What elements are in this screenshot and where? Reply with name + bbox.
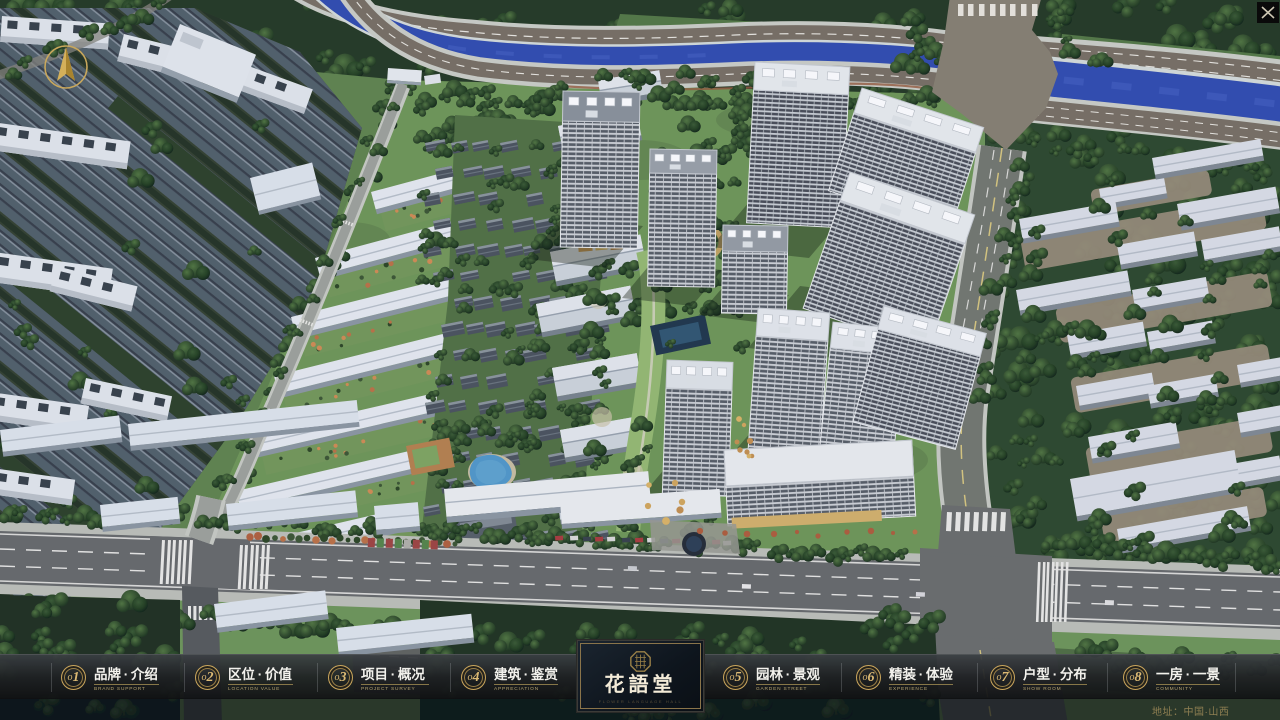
- svg-text:FLOWER LANGUAGE HALL: FLOWER LANGUAGE HALL: [599, 699, 683, 704]
- svg-text:花語堂: 花語堂: [605, 672, 677, 696]
